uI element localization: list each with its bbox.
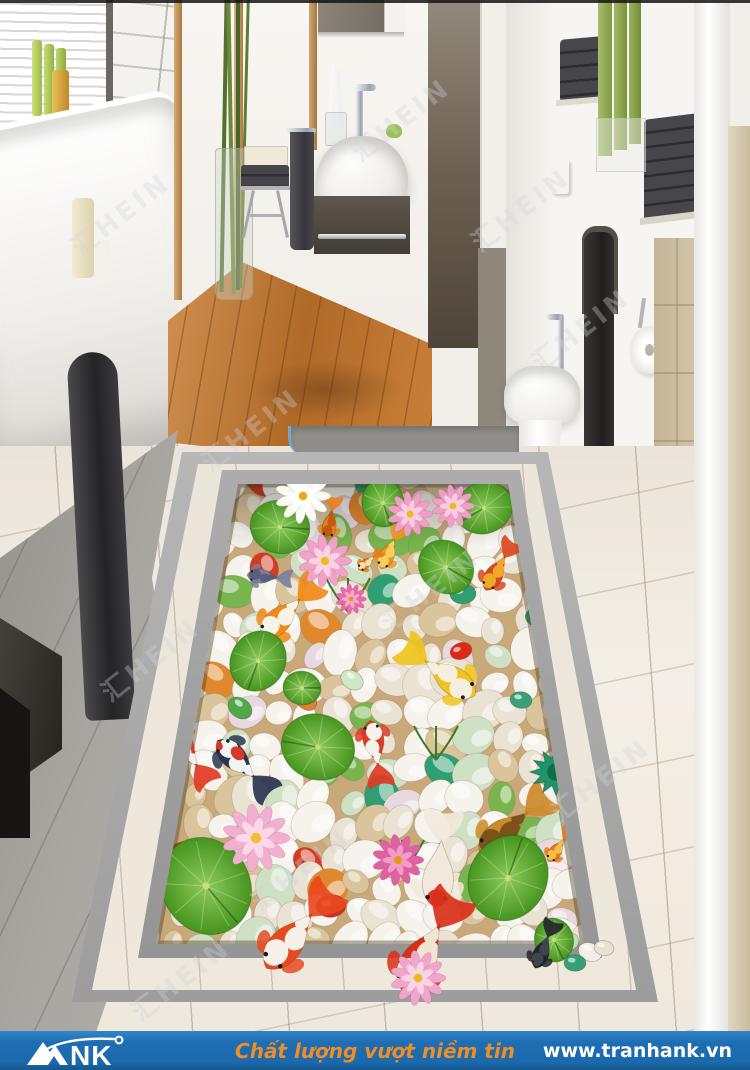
light-switch: [552, 160, 569, 194]
stool-seat: [240, 186, 290, 190]
pebble: [169, 609, 217, 643]
pebble: [127, 824, 176, 880]
pond-contents: [118, 452, 616, 974]
dark-bench-shadow: [0, 688, 30, 838]
bathroom-photo: 汇HEIN汇HEIN汇HEIN汇HEIN汇HEIN汇HEIN汇HEIN汇HEIN…: [0, 0, 750, 1031]
pebble: [152, 778, 184, 817]
logo-nk: NK: [70, 1040, 112, 1068]
lotus-pod: [547, 688, 573, 711]
wood-floor-shadow: [250, 360, 400, 420]
towel-stack-small: [560, 36, 602, 102]
pebble: [129, 865, 165, 908]
pebble: [191, 554, 222, 580]
pebble: [481, 617, 504, 645]
advert-image: 汇HEIN汇HEIN汇HEIN汇HEIN汇HEIN汇HEIN汇HEIN汇HEIN…: [0, 0, 750, 1070]
photo-top-edge: [0, 0, 750, 3]
hanging-towel-dark: [584, 232, 614, 466]
mirror-cabinet-door: [384, 0, 405, 32]
hanging-towel-hallway: [290, 132, 314, 250]
pebble: [263, 698, 294, 727]
sink-faucet-spout: [356, 84, 376, 91]
ank-logo: NK: [24, 1034, 174, 1068]
tub-edge-bottles: [72, 198, 94, 278]
shelf-bottle-green-1: [32, 40, 42, 116]
logo-a: [27, 1042, 68, 1065]
mirror-cabinet-shadow: [318, 32, 404, 38]
wood-trim-1: [174, 0, 182, 300]
tub-edge-bottle-2: [96, 240, 111, 284]
footer-tagline: Chất lượng vượt niềm tin: [235, 1039, 515, 1063]
soap-dish: [386, 124, 402, 138]
pebble: [185, 933, 216, 958]
vanity-handle: [318, 234, 406, 239]
footer-bar: NK Chất lượng vượt niềm tin www.tranhank…: [0, 1031, 750, 1070]
pebble: [126, 899, 164, 937]
pedestal-sink-basin: [504, 366, 580, 424]
foreground-white-column: [694, 0, 730, 1031]
koi-pond-floor-mural: [60, 440, 690, 1031]
candle-glass: [596, 118, 646, 172]
stool-towels: [241, 165, 289, 188]
stool-crossbar: [250, 214, 284, 217]
pebble: [156, 716, 195, 760]
pedestal-faucet: [558, 314, 564, 374]
vanity-cabinet: [314, 196, 410, 254]
pedestal-faucet-spout: [546, 314, 562, 320]
toilet-paper-core: [645, 344, 654, 356]
dark-wall-panel: [428, 0, 482, 348]
foreground-beige-strip: [728, 126, 750, 1031]
pebble: [153, 760, 186, 787]
footer-website: www.tranhank.vn: [543, 1040, 732, 1062]
logo-ring: [116, 1036, 123, 1043]
pebble: [481, 640, 516, 672]
pebble: [190, 488, 236, 537]
